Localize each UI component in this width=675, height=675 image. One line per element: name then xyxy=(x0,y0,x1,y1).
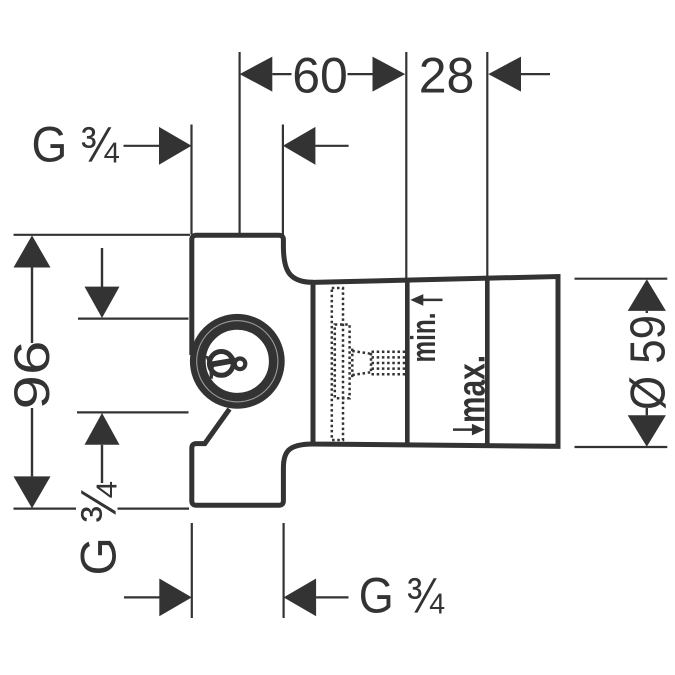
svg-text:96: 96 xyxy=(4,341,60,410)
svg-text:28: 28 xyxy=(419,48,475,104)
svg-text:60: 60 xyxy=(292,48,348,104)
svg-text:max.: max. xyxy=(452,355,494,423)
svg-text:G ¾: G ¾ xyxy=(359,567,445,623)
svg-text:min.: min. xyxy=(405,313,443,363)
svg-text:G ¾: G ¾ xyxy=(71,481,127,575)
svg-text:Ø 59: Ø 59 xyxy=(622,315,675,410)
svg-text:G ¾: G ¾ xyxy=(32,117,120,173)
